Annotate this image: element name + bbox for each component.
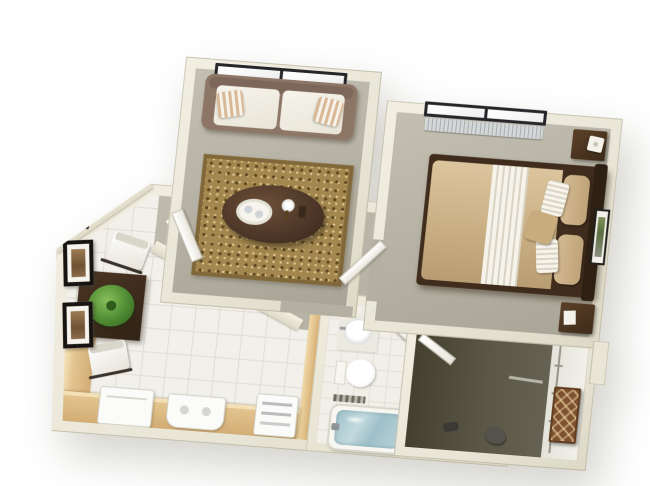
exterior-wall-bump (589, 341, 610, 386)
dining-chair-top (105, 231, 151, 271)
closet-door (418, 333, 457, 366)
bed (416, 154, 608, 299)
canvas-background (0, 0, 650, 486)
nightstand-item (564, 311, 576, 325)
stove-appliance (165, 393, 227, 431)
table-lamp (587, 135, 605, 153)
wicker-basket-tower (548, 386, 581, 444)
sofa (201, 73, 359, 140)
bedroom-walls (363, 100, 623, 349)
closet-shelf-board (509, 376, 543, 384)
window-pane (427, 105, 484, 118)
tub-faucet (331, 423, 340, 431)
striped-towel (333, 394, 366, 403)
shoe (443, 421, 459, 432)
flower-vase (280, 198, 295, 213)
bath-water (333, 409, 402, 449)
floorplan-scene (38, 48, 626, 473)
closet-shelving (541, 340, 589, 460)
duffel-bag (482, 424, 508, 447)
nightstand-top (570, 129, 607, 161)
window-pane (81, 184, 99, 226)
kitchen-window (77, 180, 102, 229)
window-pane (487, 109, 544, 122)
dining-chair-bottom (87, 339, 130, 376)
striped-throw-pillow (216, 89, 245, 118)
small-vase (298, 205, 306, 217)
sink-faucet (340, 327, 346, 330)
serving-tray (235, 198, 274, 227)
nightstand-bottom (558, 302, 595, 334)
toilet (345, 358, 377, 388)
wall-oven (253, 393, 299, 438)
closet-floor (405, 330, 589, 461)
framed-picture-bottom (62, 301, 93, 348)
framed-picture-top (63, 240, 94, 287)
refrigerator-appliance (97, 386, 155, 428)
potted-plant (86, 283, 136, 328)
